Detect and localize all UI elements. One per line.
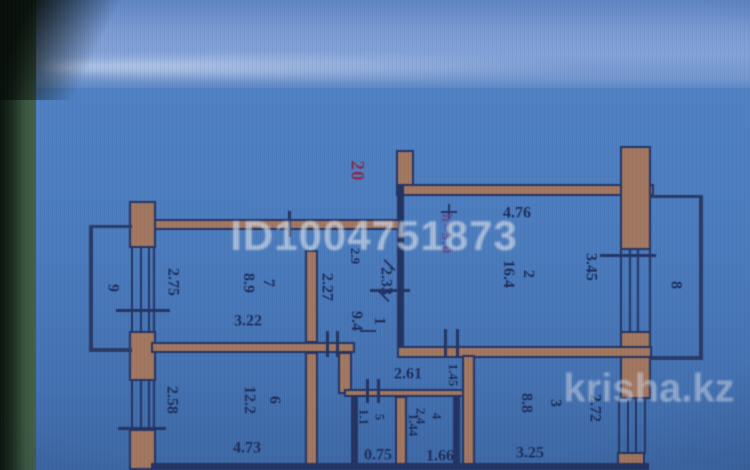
room5-label: 5 1.1 (355, 409, 388, 425)
tick-room3-door-a (444, 329, 447, 357)
dim-hall-side: 1.45 (445, 364, 461, 387)
room1-area: 9.4 (345, 311, 368, 331)
room5-number: 5 (371, 409, 387, 425)
room2-area: 16.4 (498, 260, 518, 288)
corner-shadow (0, 0, 130, 100)
tick-bath-door-a (366, 379, 369, 403)
wall-bath-right (453, 396, 460, 470)
room6-label: 6 12.2 (236, 386, 286, 414)
dim-corridor-upper: 2.33 (376, 267, 395, 295)
wall-room3-left (462, 355, 475, 470)
wall-left-pillar-upper (129, 201, 156, 248)
room2-number: 2 (518, 260, 538, 288)
room4-number: 4 (428, 408, 444, 424)
tick-room3-door-b (456, 329, 459, 357)
tick-room7-door-b (336, 331, 339, 357)
wall-room6-right (305, 352, 318, 470)
listing-id-watermark: ID1004751873 (230, 212, 518, 260)
dim-wc-width: 0.75 (364, 445, 392, 464)
wall-room2-left (397, 184, 404, 358)
balcony8-label: 8 (666, 281, 685, 289)
window-room2-balcony8 (620, 248, 651, 333)
room5-area: 1.1 (355, 409, 371, 425)
wall-left-pillar-mid (129, 331, 156, 381)
room7-label: 7 8.9 (238, 273, 278, 293)
dim-room6-bottom: 4.73 (233, 438, 261, 457)
tick-room6-window (118, 427, 166, 430)
dim-room3-bottom: 3.25 (516, 443, 544, 462)
dim-room7-bottom: 3.22 (234, 311, 262, 330)
tick-bath-door-b (377, 379, 380, 403)
wall-room7-right (305, 250, 318, 343)
wall-room2-top (396, 184, 654, 196)
wall-right-pillar-upper (620, 146, 651, 250)
room6-number: 6 (261, 386, 286, 414)
apartment-number: 20 (345, 161, 368, 182)
room3-area: 8.8 (511, 393, 540, 413)
balcony8-wall-top (649, 195, 702, 198)
balcony9-label: 9 (103, 284, 122, 292)
room7-number: 7 (258, 273, 278, 293)
dim-bath-depth: 1.44 (405, 414, 421, 437)
wall-bath-top (344, 389, 470, 397)
room1-number: 1 (368, 311, 391, 331)
dim-room7-left: 2.75 (163, 268, 182, 296)
window-room7-balcony9 (131, 248, 155, 333)
wall-bottom-edge (151, 463, 649, 470)
room6-area: 12.2 (236, 386, 261, 414)
balcony8-wall-bottom (649, 356, 702, 360)
balcony8-wall-right (699, 195, 703, 360)
room2-label: 2 16.4 (498, 260, 538, 288)
tick-balcony9-door (116, 309, 170, 312)
dim-room2-right: 3.45 (581, 253, 600, 281)
balcony9-wall-top (89, 225, 132, 228)
brand-watermark: krisha.kz (563, 367, 734, 412)
room1-label: 1 9.4 (345, 311, 391, 331)
wall-hall-jog (338, 352, 352, 394)
wall-room7-bottom (151, 342, 355, 353)
window-room6 (131, 379, 155, 431)
dim-room6-left: 2.58 (162, 386, 181, 414)
room7-area: 8.9 (238, 273, 258, 293)
balcony9-wall-bottom (89, 348, 132, 352)
dim-bath-width: 1.66 (426, 446, 454, 465)
balcony9-wall-left (89, 225, 93, 352)
wall-room2-bottom (397, 346, 652, 358)
room3-label: 3 8.8 (511, 393, 569, 413)
dim-hall-width: 2.61 (394, 364, 422, 383)
dim-closet-depth: 2.27 (317, 273, 336, 301)
tick-room2-right-dim (600, 254, 656, 257)
tick-room7-door-a (326, 331, 329, 357)
screen-photo: 20 h=3.0 2 16.4 7 8.9 1 9.4 6 12.2 3 8.8… (0, 0, 750, 470)
